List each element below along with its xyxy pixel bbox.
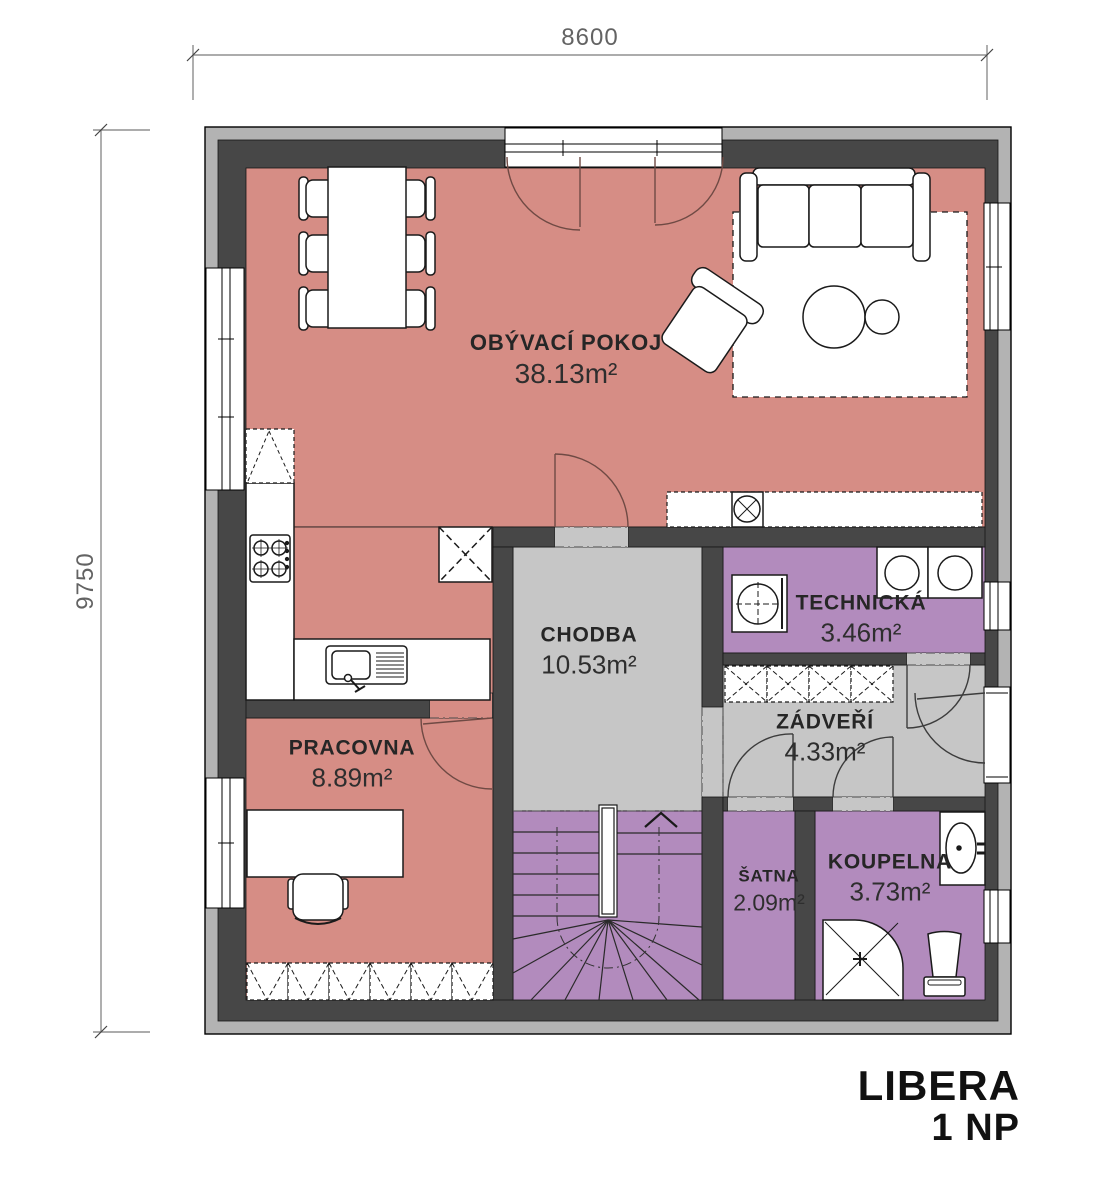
- room-area: 3.73m²: [828, 878, 952, 908]
- room-label-obyvaci-pokoj: OBÝVACÍ POKOJ 38.13m²: [470, 330, 662, 390]
- room-name: KOUPELNA: [828, 850, 952, 874]
- desk: [247, 810, 403, 877]
- room-area: 2.09m²: [733, 889, 805, 915]
- room-label-zadveri: ZÁDVEŘÍ 4.33m²: [776, 710, 874, 767]
- dining-table: [328, 167, 406, 328]
- opening-koupelna: [833, 797, 893, 811]
- opening-satna: [728, 797, 793, 811]
- room-label-chodba: CHODBA 10.53m²: [541, 623, 638, 680]
- room-name: PRACOVNA: [289, 736, 416, 760]
- opening-technicka: [907, 653, 970, 665]
- room-label-pracovna: PRACOVNA 8.89m²: [289, 736, 416, 793]
- room-label-koupelna: KOUPELNA 3.73m²: [828, 850, 952, 907]
- washing-machine: [732, 575, 787, 632]
- kitchen-counter: [246, 483, 294, 700]
- dimension-width-label: 8600: [561, 24, 618, 52]
- dining-set: [299, 167, 435, 330]
- appliance: [877, 547, 982, 598]
- room-name: ZÁDVEŘÍ: [776, 710, 874, 734]
- room-label-technicka: TECHNICKÁ 3.46m²: [796, 591, 927, 648]
- room-area: 8.89m²: [289, 764, 416, 794]
- dimension-left: [93, 124, 150, 1038]
- project-title: LIBERA: [858, 1064, 1020, 1108]
- room-name: TECHNICKÁ: [796, 591, 927, 615]
- entry-wardrobe: [725, 666, 893, 702]
- room-label-satna: ŠATNA 2.09m²: [733, 867, 805, 916]
- floor-title: 1 NP: [858, 1108, 1020, 1150]
- window-right-koupelna: [984, 890, 1010, 943]
- page: { "title": { "project": "LIBERA", "floor…: [0, 0, 1120, 1200]
- stove: [250, 535, 290, 582]
- dimension-height-label: 9750: [72, 552, 100, 609]
- room-area: 38.13m²: [470, 358, 662, 390]
- title-block: LIBERA 1 NP: [858, 1064, 1020, 1150]
- stairs-stringer: [599, 805, 617, 917]
- sofa: [740, 168, 930, 261]
- window-left-living: [206, 268, 244, 490]
- office-chair: [288, 874, 348, 924]
- tall-cabinet: [246, 429, 294, 483]
- window-top-french-door: [505, 128, 722, 167]
- room-area: 4.33m²: [776, 738, 874, 768]
- opening-chodba: [555, 527, 628, 547]
- dimension-top: [187, 45, 993, 100]
- floor-plan-svg: [0, 0, 1120, 1200]
- room-name: ŠATNA: [733, 867, 805, 887]
- floor-passage: [702, 707, 723, 797]
- room-area: 10.53m²: [541, 651, 638, 681]
- room-name: OBÝVACÍ POKOJ: [470, 330, 662, 355]
- office-wardrobe: [247, 963, 493, 1000]
- coffee-table: [803, 286, 865, 348]
- window-left-pracovna: [206, 778, 244, 908]
- entrance-door-opening: [984, 687, 1010, 783]
- fridge: [439, 527, 492, 582]
- side-table: [865, 300, 899, 334]
- wall-counter: [667, 492, 982, 527]
- window-right-living: [984, 203, 1010, 330]
- room-area: 3.46m²: [796, 619, 927, 649]
- room-name: CHODBA: [541, 623, 638, 647]
- window-right-technicka: [984, 582, 1010, 630]
